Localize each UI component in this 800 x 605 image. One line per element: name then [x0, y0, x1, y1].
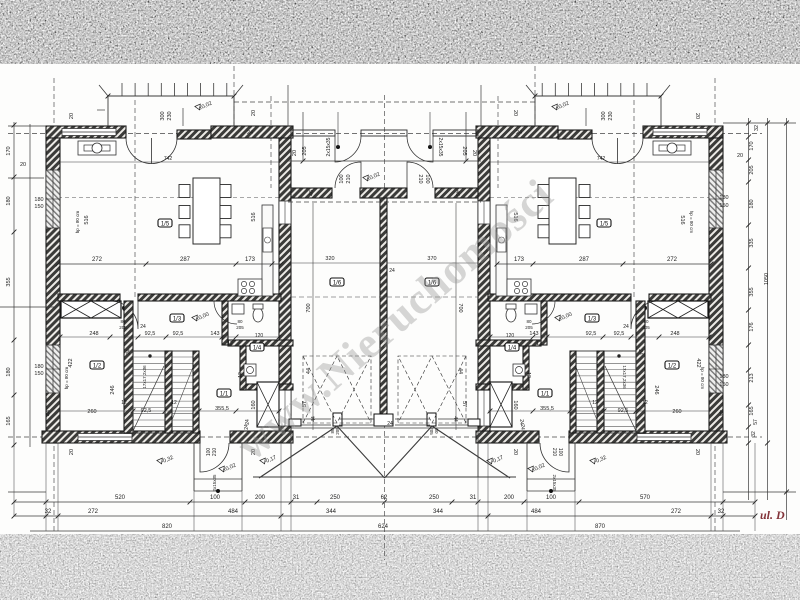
svg-text:165: 165	[6, 416, 12, 425]
svg-text:2x15x35: 2x15x35	[212, 474, 217, 492]
svg-text:12: 12	[536, 341, 542, 347]
svg-text:57: 57	[753, 419, 759, 425]
svg-text:46: 46	[454, 190, 460, 196]
svg-text:100: 100	[424, 174, 430, 183]
svg-text:62: 62	[381, 495, 388, 501]
svg-text:24: 24	[126, 349, 132, 355]
svg-text:516: 516	[84, 215, 90, 224]
svg-text:32: 32	[45, 509, 52, 515]
svg-text:205: 205	[302, 146, 308, 155]
svg-text:422: 422	[68, 358, 74, 367]
svg-text:1/1: 1/1	[220, 391, 229, 397]
svg-text:92,5: 92,5	[586, 331, 597, 337]
svg-text:287: 287	[180, 257, 191, 263]
svg-text:200: 200	[255, 495, 266, 501]
svg-text:355: 355	[6, 277, 12, 286]
svg-text:180: 180	[719, 195, 728, 201]
svg-text:272: 272	[671, 509, 682, 515]
svg-text:20: 20	[251, 110, 257, 116]
svg-text:92,5: 92,5	[141, 408, 152, 414]
svg-text:180: 180	[34, 364, 43, 370]
svg-text:173: 173	[245, 257, 256, 263]
svg-text:230: 230	[608, 111, 614, 120]
svg-text:80: 80	[120, 319, 126, 324]
svg-text:272: 272	[667, 257, 678, 263]
svg-text:ul. D: ul. D	[760, 508, 785, 522]
svg-text:624: 624	[378, 524, 389, 530]
svg-text:24: 24	[516, 130, 522, 136]
svg-text:205: 205	[335, 427, 340, 435]
svg-text:248: 248	[670, 331, 679, 337]
svg-text:92,5: 92,5	[145, 331, 156, 337]
svg-text:180: 180	[719, 374, 728, 380]
svg-text:170: 170	[749, 141, 755, 150]
svg-text:32: 32	[751, 431, 757, 437]
svg-text:250: 250	[330, 495, 341, 501]
svg-text:250: 250	[429, 495, 440, 501]
svg-text:180: 180	[34, 197, 43, 203]
svg-text:80: 80	[526, 319, 532, 324]
svg-text:17x17,2x36: 17x17,2x36	[142, 365, 147, 389]
svg-text:870: 870	[595, 524, 606, 530]
svg-text:20: 20	[471, 150, 477, 156]
svg-text:320: 320	[325, 256, 334, 262]
svg-text:hp = 80 cm: hp = 80 cm	[689, 211, 694, 234]
svg-text:210: 210	[551, 448, 557, 457]
svg-text:20: 20	[512, 449, 518, 455]
svg-text:120: 120	[506, 333, 515, 339]
svg-text:20: 20	[69, 449, 75, 455]
svg-text:180: 180	[6, 196, 12, 205]
svg-text:1/5: 1/5	[161, 221, 170, 227]
svg-text:516: 516	[679, 215, 685, 224]
svg-text:24: 24	[140, 324, 146, 330]
svg-text:205: 205	[525, 325, 533, 330]
svg-text:12: 12	[592, 400, 598, 406]
svg-text:210: 210	[417, 174, 423, 183]
svg-text:300: 300	[601, 111, 607, 120]
svg-text:1/3: 1/3	[173, 316, 182, 322]
svg-text:12: 12	[642, 400, 648, 406]
svg-text:260: 260	[87, 409, 96, 415]
svg-text:120: 120	[255, 333, 264, 339]
svg-text:205: 205	[119, 325, 127, 330]
svg-text:92,5: 92,5	[618, 408, 629, 414]
svg-text:210: 210	[212, 448, 218, 457]
svg-text:210: 210	[346, 174, 352, 183]
svg-text:17x17,2x36: 17x17,2x36	[622, 365, 627, 389]
svg-text:165: 165	[749, 406, 755, 415]
svg-text:2x15x35: 2x15x35	[437, 138, 443, 157]
svg-text:1/2: 1/2	[93, 363, 102, 369]
svg-text:1/4: 1/4	[508, 345, 517, 351]
svg-text:1/6: 1/6	[333, 280, 342, 286]
svg-text:176: 176	[749, 322, 755, 331]
svg-text:20: 20	[20, 162, 26, 168]
svg-text:484: 484	[228, 509, 239, 515]
svg-text:272: 272	[88, 509, 99, 515]
svg-text:32: 32	[718, 509, 725, 515]
svg-text:570: 570	[640, 495, 651, 501]
svg-text:160: 160	[512, 400, 518, 409]
svg-text:173: 173	[514, 257, 525, 263]
svg-text:230: 230	[167, 111, 173, 120]
svg-text:44: 44	[452, 416, 458, 422]
svg-text:287: 287	[579, 257, 590, 263]
svg-text:31: 31	[470, 495, 477, 501]
svg-text:355,5: 355,5	[540, 406, 554, 412]
svg-text:31: 31	[293, 495, 300, 501]
svg-text:180: 180	[6, 367, 12, 376]
svg-text:12: 12	[238, 372, 244, 378]
svg-text:20: 20	[694, 113, 700, 119]
svg-text:hp = 80 cm: hp = 80 cm	[700, 367, 705, 390]
svg-text:205: 205	[749, 165, 755, 174]
svg-text:170: 170	[6, 146, 12, 155]
svg-text:32: 32	[754, 125, 760, 131]
svg-text:12: 12	[171, 400, 177, 406]
svg-text:92,5: 92,5	[173, 331, 184, 337]
svg-text:20: 20	[292, 150, 298, 156]
svg-text:150: 150	[34, 204, 43, 210]
svg-text:205: 205	[461, 146, 467, 155]
svg-text:143: 143	[210, 331, 219, 337]
svg-text:516: 516	[251, 212, 257, 221]
svg-text:24: 24	[637, 349, 643, 355]
svg-text:205: 205	[236, 325, 244, 330]
svg-text:20: 20	[512, 110, 518, 116]
svg-text:20: 20	[69, 113, 75, 119]
svg-text:44: 44	[457, 368, 463, 374]
svg-text:80: 80	[643, 319, 649, 324]
svg-text:24: 24	[389, 268, 395, 274]
svg-text:205: 205	[642, 325, 650, 330]
svg-text:hp = 80 cm: hp = 80 cm	[75, 211, 80, 234]
svg-text:300: 300	[160, 111, 166, 120]
svg-text:1/4: 1/4	[253, 345, 262, 351]
svg-text:272: 272	[92, 257, 103, 263]
svg-text:344: 344	[326, 509, 337, 515]
svg-text:742: 742	[597, 156, 606, 162]
svg-text:44: 44	[46, 410, 52, 416]
svg-text:1050: 1050	[764, 273, 770, 285]
svg-text:1/2: 1/2	[668, 363, 677, 369]
svg-text:260: 260	[672, 409, 681, 415]
svg-text:742: 742	[164, 156, 173, 162]
svg-text:57: 57	[461, 401, 467, 407]
svg-text:92,5: 92,5	[614, 331, 625, 337]
svg-text:213: 213	[749, 373, 755, 382]
svg-text:355,5: 355,5	[215, 406, 229, 412]
svg-text:44: 44	[717, 410, 723, 416]
svg-text:248: 248	[89, 331, 98, 337]
svg-text:24: 24	[247, 130, 253, 136]
svg-text:hp = 80 cm: hp = 80 cm	[64, 367, 69, 390]
svg-text:422: 422	[695, 358, 701, 367]
svg-text:246: 246	[110, 385, 116, 394]
svg-text:344: 344	[433, 509, 444, 515]
svg-text:100: 100	[546, 495, 557, 501]
svg-text:150: 150	[34, 371, 43, 377]
svg-text:246: 246	[653, 385, 659, 394]
svg-text:335: 335	[749, 238, 755, 247]
svg-text:355: 355	[749, 287, 755, 296]
svg-text:100: 100	[339, 174, 345, 183]
svg-text:24: 24	[387, 421, 393, 427]
svg-text:700: 700	[306, 303, 312, 312]
svg-text:20: 20	[737, 153, 743, 159]
svg-text:200: 200	[504, 495, 515, 501]
svg-text:143: 143	[529, 331, 538, 337]
svg-text:12: 12	[121, 400, 127, 406]
svg-text:12: 12	[227, 341, 233, 347]
svg-text:1/1: 1/1	[541, 391, 550, 397]
svg-text:1/3: 1/3	[588, 316, 597, 322]
svg-text:1/5: 1/5	[600, 221, 609, 227]
svg-text:820: 820	[162, 524, 173, 530]
svg-text:24: 24	[519, 424, 525, 430]
svg-text:700: 700	[457, 303, 463, 312]
svg-text:2x15x35: 2x15x35	[552, 474, 557, 492]
svg-text:205: 205	[429, 427, 434, 435]
svg-text:2x15x35: 2x15x35	[326, 137, 332, 156]
svg-text:150: 150	[719, 203, 728, 209]
svg-text:150: 150	[719, 382, 728, 388]
svg-text:520: 520	[115, 495, 126, 501]
svg-text:46: 46	[309, 190, 315, 196]
svg-text:180: 180	[749, 199, 755, 208]
svg-text:100: 100	[210, 495, 221, 501]
svg-text:24: 24	[623, 324, 629, 330]
svg-text:484: 484	[531, 509, 542, 515]
svg-text:12: 12	[525, 372, 531, 378]
svg-text:20: 20	[694, 449, 700, 455]
svg-text:80: 80	[237, 319, 243, 324]
